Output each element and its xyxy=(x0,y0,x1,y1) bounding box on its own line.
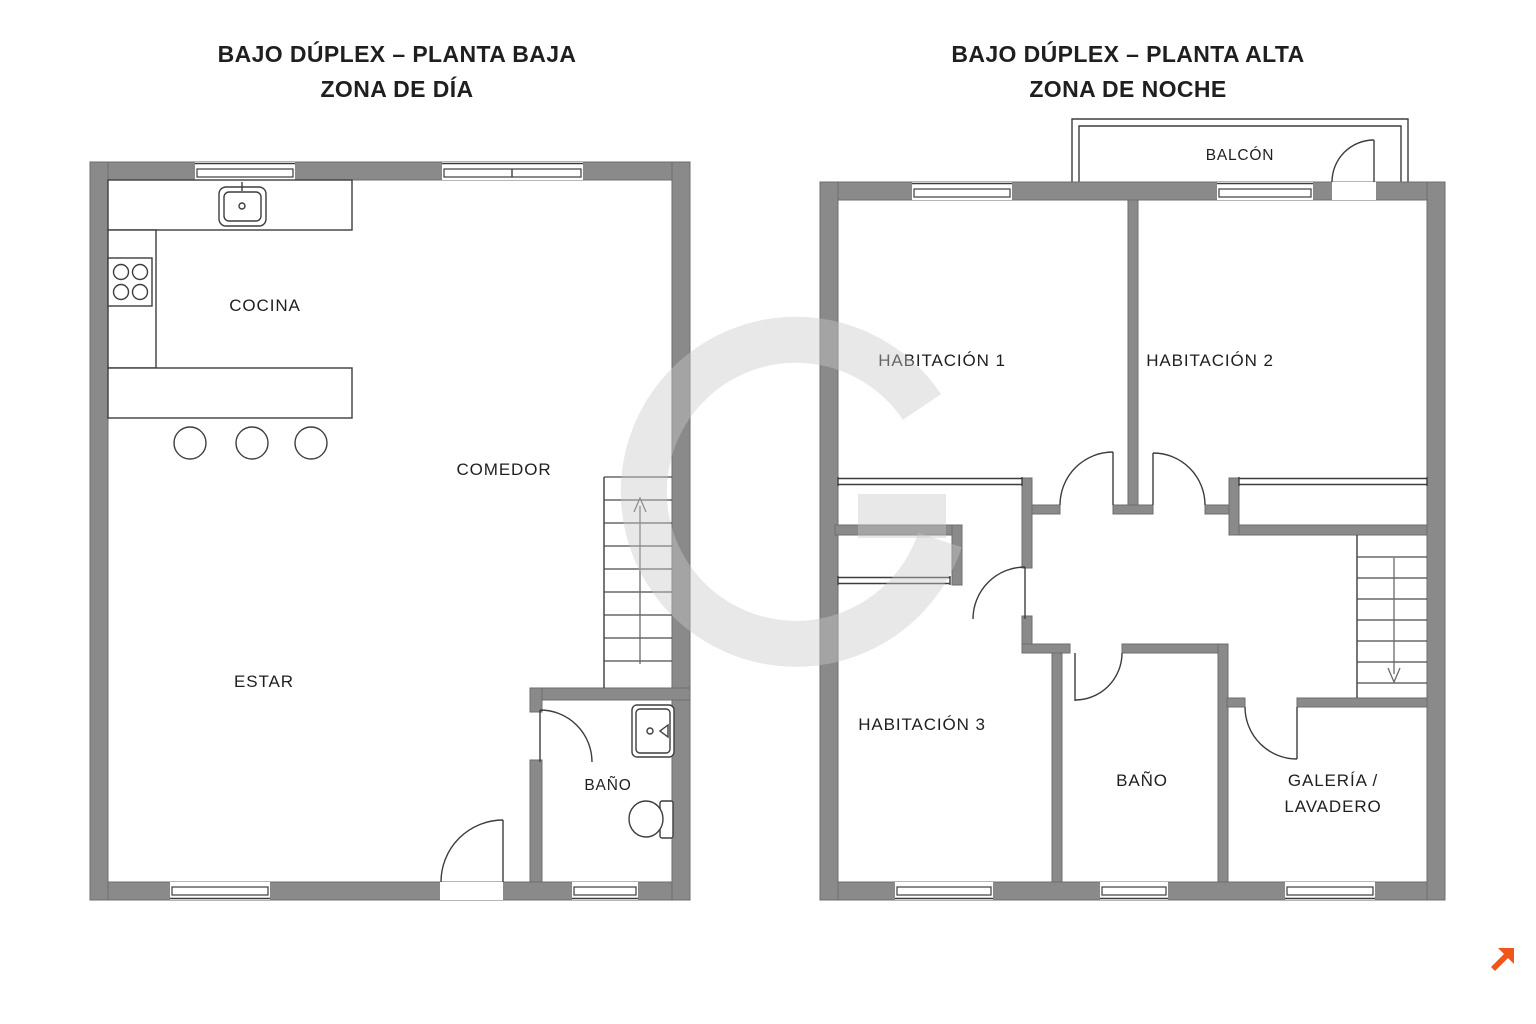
wardrobe-hab1 xyxy=(838,477,1022,486)
room-label-cocina: COCINA xyxy=(229,296,301,315)
stairs-down xyxy=(1357,535,1427,698)
room-label-habitacion-2: HABITACIÓN 2 xyxy=(1146,351,1274,370)
wardrobe-hab2 xyxy=(1239,477,1427,486)
window xyxy=(912,182,1012,200)
window xyxy=(1285,882,1375,900)
door-habitacion-3 xyxy=(973,567,1025,619)
kitchen-sink-icon xyxy=(219,182,266,226)
door-bano-alta xyxy=(1075,653,1122,701)
bathroom-door xyxy=(540,710,592,762)
brand-logo-arrow-icon xyxy=(1491,948,1514,971)
window xyxy=(1100,882,1168,900)
room-label-bano-pb: BAÑO xyxy=(584,777,631,794)
room-label-bano-pa: BAÑO xyxy=(1116,771,1168,790)
window xyxy=(1217,182,1313,200)
window xyxy=(195,162,295,180)
window xyxy=(572,882,638,900)
right-plan-title: BAJO DÚPLEX – PLANTA ALTA xyxy=(951,40,1304,67)
stove-icon xyxy=(108,258,152,306)
room-label-estar: ESTAR xyxy=(234,672,294,691)
left-plan-title: BAJO DÚPLEX – PLANTA BAJA xyxy=(218,40,577,67)
entrance-door xyxy=(440,820,503,900)
room-label-habitacion-3: HABITACIÓN 3 xyxy=(858,715,986,734)
room-label-balcon: BALCÓN xyxy=(1206,147,1275,164)
stool-icons xyxy=(174,427,327,459)
right-plan-walls xyxy=(820,182,1445,900)
window xyxy=(442,162,583,180)
toilet-icon xyxy=(629,801,673,838)
room-label-galeria-2: LAVADERO xyxy=(1284,797,1381,816)
window xyxy=(895,882,993,900)
window xyxy=(170,882,270,900)
bathroom-sink-icon xyxy=(632,705,674,757)
floorplan-left: COCINA COMEDOR ESTAR BAÑO xyxy=(90,162,690,900)
door-habitacion-2 xyxy=(1153,453,1205,505)
door-galeria xyxy=(1245,707,1297,759)
floorplan-page: BAJO DÚPLEX – PLANTA BAJA ZONA DE DÍA BA… xyxy=(0,0,1536,1024)
door-habitacion-1 xyxy=(1060,452,1113,505)
room-label-galeria-1: GALERÍA / xyxy=(1288,771,1378,790)
room-label-comedor: COMEDOR xyxy=(456,460,551,479)
left-plan-subtitle: ZONA DE DÍA xyxy=(320,75,473,102)
right-plan-subtitle: ZONA DE NOCHE xyxy=(1029,76,1226,102)
